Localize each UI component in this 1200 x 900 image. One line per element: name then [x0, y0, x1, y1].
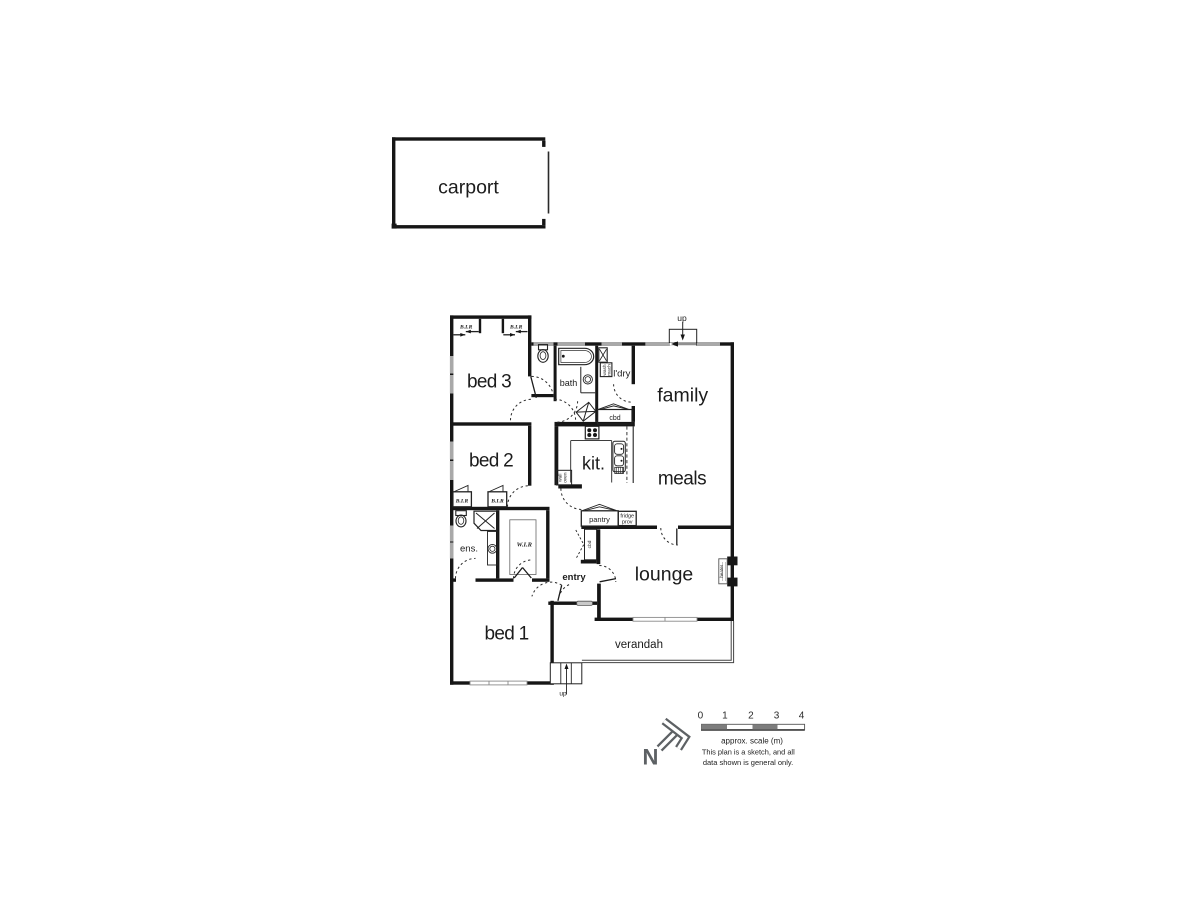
svg-text:N: N — [643, 745, 659, 770]
svg-text:mach: mach — [607, 364, 613, 376]
svg-text:entry: entry — [562, 572, 586, 583]
svg-text:up: up — [559, 691, 567, 698]
svg-text:2: 2 — [748, 711, 754, 722]
svg-text:lounge: lounge — [635, 564, 694, 586]
svg-text:kit.: kit. — [582, 454, 605, 474]
svg-text:This plan is a sketch, and all: This plan is a sketch, and all — [702, 747, 795, 756]
svg-text:bed 2: bed 2 — [469, 451, 513, 472]
svg-text:prov: prov — [622, 520, 633, 526]
svg-text:l'dry: l'dry — [613, 368, 630, 379]
svg-text:cbd: cbd — [609, 415, 620, 422]
svg-text:oven: oven — [564, 472, 569, 483]
svg-text:up: up — [677, 313, 687, 323]
svg-text:heater: heater — [719, 564, 724, 577]
svg-text:pantry: pantry — [589, 515, 610, 524]
svg-text:W.I.R: W.I.R — [517, 541, 533, 548]
svg-text:approx. scale (m): approx. scale (m) — [721, 736, 783, 745]
svg-text:family: family — [657, 384, 708, 406]
svg-text:bath: bath — [560, 378, 578, 388]
svg-text:bed 1: bed 1 — [484, 624, 528, 645]
svg-text:B.I.R: B.I.R — [459, 324, 473, 330]
svg-text:B.I.R: B.I.R — [490, 498, 504, 504]
svg-text:3: 3 — [774, 711, 780, 722]
svg-text:verandah: verandah — [615, 639, 663, 651]
svg-text:4: 4 — [799, 711, 805, 722]
svg-text:carport: carport — [438, 176, 499, 198]
svg-text:bed 3: bed 3 — [467, 372, 511, 393]
svg-text:meals: meals — [658, 468, 706, 489]
svg-text:ens.: ens. — [460, 543, 478, 554]
svg-text:B.I.R: B.I.R — [509, 324, 523, 330]
svg-text:1: 1 — [722, 711, 728, 722]
svg-text:B.I.R: B.I.R — [455, 498, 469, 504]
svg-text:cbd: cbd — [587, 540, 593, 548]
svg-text:0: 0 — [698, 711, 704, 722]
svg-text:data shown is general only.: data shown is general only. — [703, 758, 793, 767]
